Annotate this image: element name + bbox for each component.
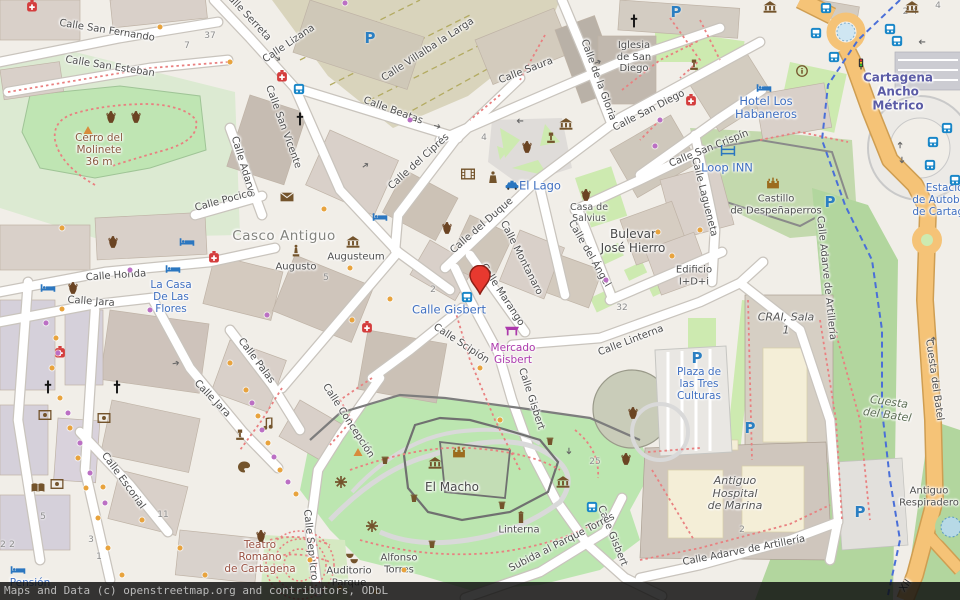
map-base-layer	[0, 0, 960, 600]
attribution-bar: Maps and Data (c) openstreetmap.org and …	[0, 582, 960, 600]
map-canvas[interactable]: Calle San FernandoCalle San EstebanCalle…	[0, 0, 960, 600]
